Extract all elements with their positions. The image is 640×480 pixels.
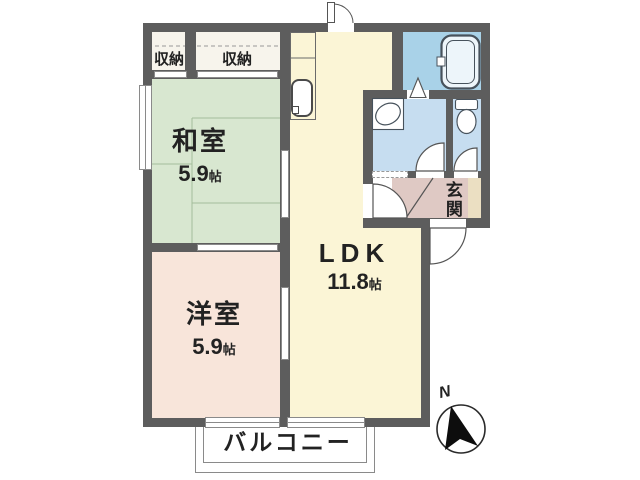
- closet-left-label: 収納: [148, 52, 190, 68]
- washbasin-icon: [372, 99, 405, 130]
- ldk-size-value: 11.8: [327, 269, 369, 294]
- western-room-size-unit: 帖: [223, 342, 236, 357]
- japanese-room-size-value: 5.9: [178, 161, 209, 186]
- washroom-door-arc: [416, 143, 444, 171]
- entrance-label: 玄関: [443, 180, 461, 220]
- floor-plan: 収納 収納 和室 5.9帖 洋室 5.9帖 LDK 11.8帖 玄関 バルコニー…: [0, 0, 640, 480]
- western-room-size-value: 5.9: [192, 334, 223, 359]
- closet-right-label: 収納: [215, 52, 259, 68]
- ldk-size: 11.8帖: [301, 270, 408, 293]
- north-arrow-icon: [437, 405, 485, 453]
- kitchen-backdoor: [328, 3, 354, 24]
- japanese-room-label: 和室: [147, 128, 253, 155]
- folding-door-icon: [410, 78, 426, 98]
- toilet-door-arc: [454, 148, 477, 171]
- ldk-label: LDK: [301, 240, 408, 267]
- entrance-step-line: [406, 178, 433, 218]
- western-room-size: 5.9帖: [161, 335, 267, 358]
- hall-door-arc: [373, 184, 407, 218]
- ldk-size-unit: 帖: [369, 277, 382, 292]
- western-room-label: 洋室: [161, 301, 267, 328]
- balcony-label: バルコニー: [205, 430, 371, 454]
- toilet-icon: [456, 100, 478, 134]
- front-door-arc: [430, 228, 466, 264]
- bathtub-icon: [437, 36, 480, 89]
- japanese-room-size: 5.9帖: [147, 162, 253, 185]
- japanese-room-size-unit: 帖: [209, 169, 222, 184]
